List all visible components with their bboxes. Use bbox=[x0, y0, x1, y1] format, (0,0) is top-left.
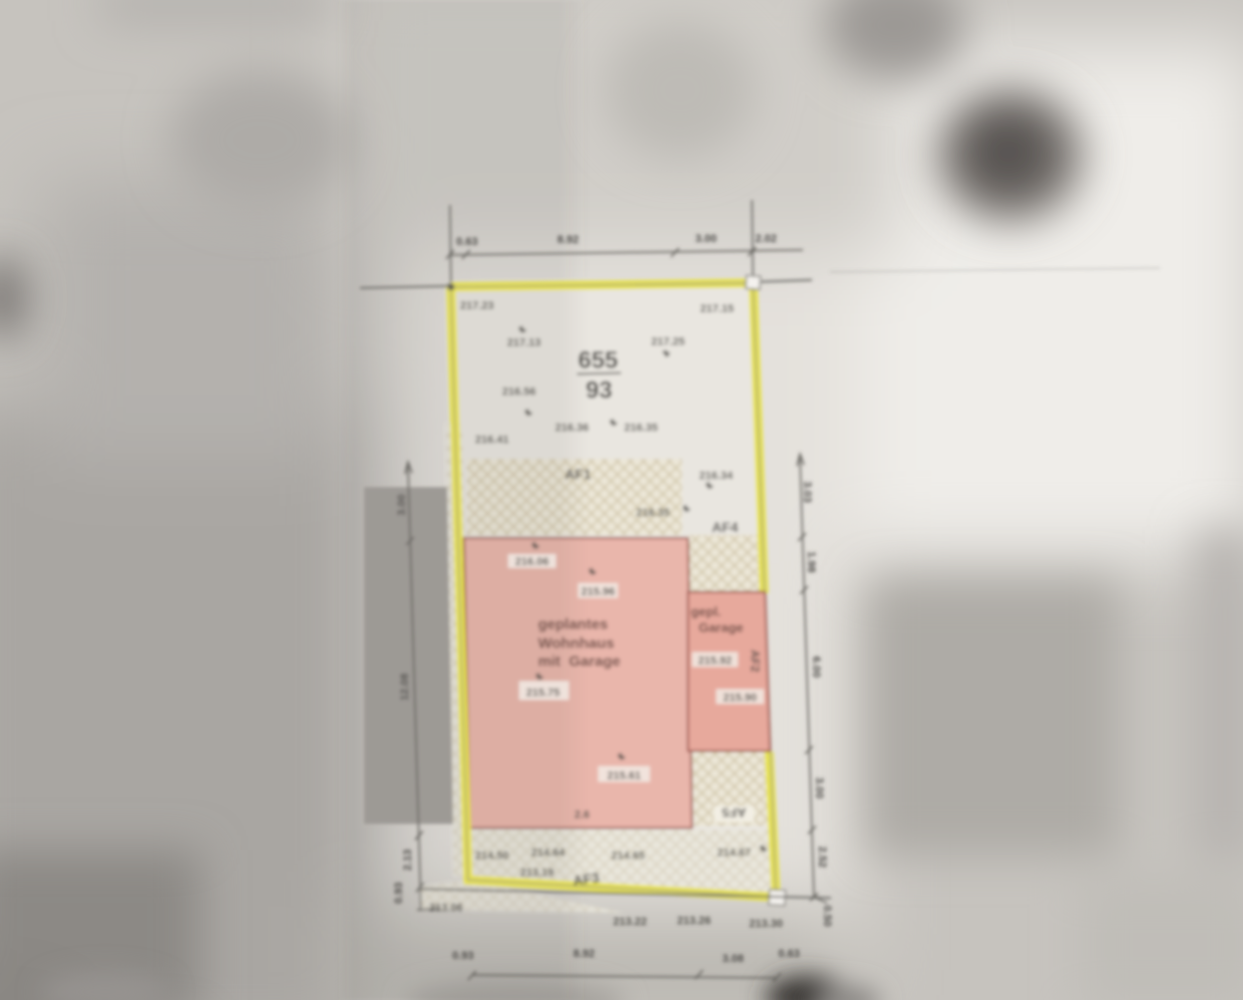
svg-text:213.30: 213.30 bbox=[749, 918, 783, 930]
svg-text:214.67: 214.67 bbox=[717, 847, 751, 859]
svg-text:216.36: 216.36 bbox=[555, 422, 589, 434]
svg-text:217.15: 217.15 bbox=[700, 303, 734, 315]
svg-text:215.92: 215.92 bbox=[698, 655, 732, 667]
svg-text:216.35: 216.35 bbox=[636, 507, 670, 519]
svg-text:214.64: 214.64 bbox=[531, 847, 566, 859]
svg-text:0.93: 0.93 bbox=[452, 950, 473, 962]
svg-text:6.00: 6.00 bbox=[810, 656, 822, 677]
svg-text:216.06: 216.06 bbox=[515, 556, 549, 568]
svg-text:215.90: 215.90 bbox=[723, 692, 757, 704]
svg-text:Wohnhaus: Wohnhaus bbox=[538, 635, 614, 652]
svg-text:geplantes: geplantes bbox=[538, 616, 608, 633]
svg-text:0.63: 0.63 bbox=[456, 236, 477, 248]
svg-text:215.75: 215.75 bbox=[526, 687, 560, 699]
svg-text:AF5: AF5 bbox=[722, 805, 747, 820]
svg-text:216.34: 216.34 bbox=[699, 470, 734, 482]
svg-text:655: 655 bbox=[578, 347, 618, 374]
svg-text:gepl.: gepl. bbox=[691, 604, 721, 619]
svg-text:213.22: 213.22 bbox=[613, 916, 647, 928]
svg-text:93: 93 bbox=[586, 377, 613, 404]
svg-text:215.61: 215.61 bbox=[607, 770, 641, 782]
svg-text:0.63: 0.63 bbox=[778, 948, 799, 960]
svg-text:3.00: 3.00 bbox=[813, 777, 825, 798]
svg-text:214.50: 214.50 bbox=[475, 850, 509, 862]
svg-text:216.35: 216.35 bbox=[624, 422, 658, 434]
svg-text:216.41: 216.41 bbox=[475, 434, 509, 446]
svg-text:2.02: 2.02 bbox=[755, 233, 776, 245]
svg-text:214.65: 214.65 bbox=[611, 850, 645, 862]
svg-text:213.19: 213.19 bbox=[520, 867, 554, 879]
svg-text:AF2: AF2 bbox=[748, 650, 762, 673]
svg-text:12.08: 12.08 bbox=[399, 673, 411, 701]
svg-text:AF1: AF1 bbox=[565, 466, 592, 482]
svg-text:0.50: 0.50 bbox=[821, 905, 833, 926]
svg-text:8.92: 8.92 bbox=[573, 948, 594, 960]
svg-text:217.13: 217.13 bbox=[507, 337, 541, 349]
svg-text:mit Garage: mit Garage bbox=[538, 653, 621, 670]
svg-text:215.96: 215.96 bbox=[581, 586, 615, 598]
svg-text:3.00: 3.00 bbox=[695, 233, 716, 245]
svg-text:217.23: 217.23 bbox=[460, 300, 494, 312]
svg-text:3.08: 3.08 bbox=[722, 953, 743, 965]
svg-text:8.92: 8.92 bbox=[557, 234, 578, 246]
svg-text:2.6: 2.6 bbox=[574, 809, 589, 821]
svg-text:217.25: 217.25 bbox=[651, 336, 685, 348]
svg-text:1.98: 1.98 bbox=[805, 551, 817, 572]
svg-text:Garage: Garage bbox=[699, 620, 744, 635]
svg-text:3.03: 3.03 bbox=[801, 481, 813, 502]
svg-text:0.93: 0.93 bbox=[393, 882, 405, 903]
svg-text:2.13: 2.13 bbox=[402, 849, 414, 870]
svg-text:216.56: 216.56 bbox=[502, 386, 536, 398]
svg-text:213.06: 213.06 bbox=[429, 902, 463, 914]
svg-text:213.26: 213.26 bbox=[677, 915, 711, 927]
svg-text:3.00: 3.00 bbox=[396, 494, 408, 515]
svg-text:2.52: 2.52 bbox=[816, 846, 828, 867]
svg-text:AF4: AF4 bbox=[712, 519, 739, 535]
